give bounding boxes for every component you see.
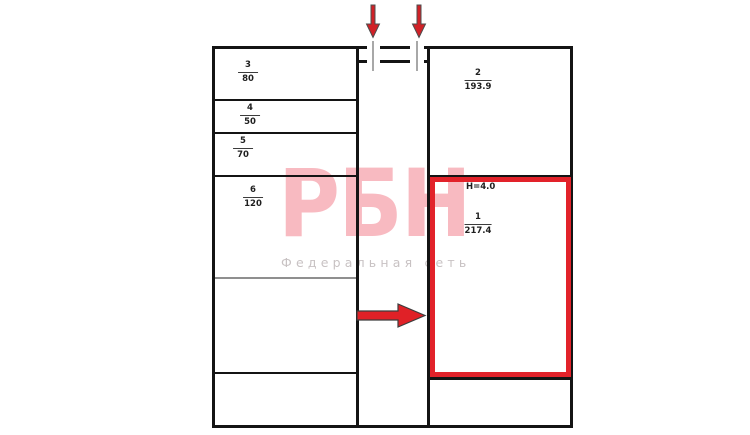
room-area: 193.9 xyxy=(465,81,492,93)
room-number: 3 xyxy=(238,60,258,73)
room-number: 1 xyxy=(465,212,492,225)
room-area: 50 xyxy=(240,116,260,128)
room-divider-gray xyxy=(215,277,356,279)
room-divider xyxy=(430,377,570,380)
room-divider xyxy=(215,99,356,101)
room-divider xyxy=(215,132,356,134)
direction-arrow-right-icon xyxy=(356,302,427,329)
door-opening-tick xyxy=(372,41,374,71)
room-number: 5 xyxy=(233,136,253,149)
room-area: 217.4 xyxy=(465,225,492,237)
room-number: 6 xyxy=(243,185,263,198)
highlighted-room-outline xyxy=(430,177,571,377)
entrance-arrow-down-icon xyxy=(364,4,382,39)
wall-left xyxy=(212,46,215,428)
wall-vestibule-segment xyxy=(356,60,367,63)
room-label-3: 3 80 xyxy=(238,60,258,84)
room-divider xyxy=(215,372,356,374)
wall-corridor-left xyxy=(356,46,359,428)
wall-top-right xyxy=(424,46,573,49)
room-label-4: 4 50 xyxy=(240,103,260,127)
room-label-2: 2 193.9 xyxy=(465,68,492,92)
room-area: 120 xyxy=(243,198,263,210)
door-opening-tick xyxy=(416,41,418,71)
room-number: 2 xyxy=(465,68,492,81)
ceiling-height-label: H=4.0 xyxy=(466,182,495,192)
room-label-5: 5 70 xyxy=(233,136,253,160)
room-area: 70 xyxy=(233,149,253,161)
floor-plan: РБН Федеральная сеть 3 80 4 50 5 70 6 12… xyxy=(0,0,750,435)
room-label-1: 1 217.4 xyxy=(465,212,492,236)
wall-top-middle xyxy=(380,46,410,49)
wall-vestibule-segment xyxy=(424,60,430,63)
wall-vestibule-segment xyxy=(380,60,410,63)
room-label-6: 6 120 xyxy=(243,185,263,209)
room-area: 80 xyxy=(238,73,258,85)
entrance-arrow-down-icon xyxy=(410,4,428,39)
wall-top-left xyxy=(212,46,367,49)
wall-bottom xyxy=(212,425,573,428)
room-number: 4 xyxy=(240,103,260,116)
room-divider xyxy=(215,175,356,177)
